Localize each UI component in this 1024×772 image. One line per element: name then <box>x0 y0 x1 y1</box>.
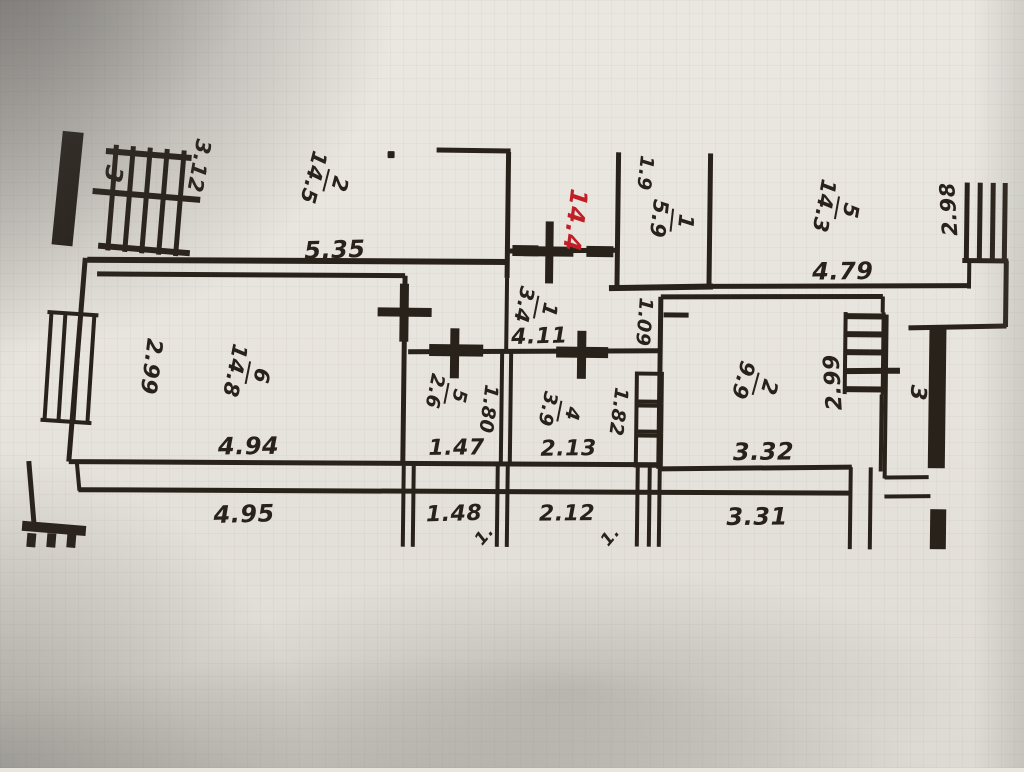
wall-block <box>586 246 613 257</box>
wall-divider <box>501 352 502 464</box>
wall-bottom-2 <box>78 484 851 499</box>
wall-room1-left <box>617 152 619 288</box>
room-area: 3.9 <box>534 390 562 429</box>
ink-dot <box>388 151 395 158</box>
dim-4-95: 4.95 <box>213 501 275 527</box>
dim-3-31: 3.31 <box>726 504 787 529</box>
room-number: 1 <box>533 296 562 323</box>
wall-room99-right <box>881 395 882 472</box>
wall-divider <box>510 352 511 464</box>
dim-1-48: 1.48 <box>426 503 483 527</box>
wall-room99-top <box>661 294 883 300</box>
wall-bottom-3 <box>884 496 930 498</box>
wall-corridor-left <box>506 278 507 352</box>
room-number: 5 <box>834 197 863 224</box>
dim-1-47: 1.47 <box>428 437 485 460</box>
solid-wall-balcony-right <box>928 326 947 468</box>
floor-plan: 3 3.12 2 14.5 5.35 14.4 1.9 1 5.9 5 14.3… <box>0 0 1024 772</box>
wall-room1-right <box>709 153 711 286</box>
dim-4-79: 4.79 <box>812 259 873 284</box>
room-area: 2.6 <box>421 372 449 411</box>
wall-balcony-right-bottom <box>885 477 929 479</box>
dim-2-12: 2.12 <box>539 503 596 526</box>
dim-4-94: 4.94 <box>218 434 279 459</box>
wall-tick-left <box>76 462 79 491</box>
centerline-cross <box>377 283 432 342</box>
room-label-5-14-3: 5 14.3 <box>808 177 866 239</box>
wall-room2-bottom <box>87 257 509 265</box>
wall-balcony-right-left <box>885 315 887 479</box>
wall-step-right <box>908 325 1006 329</box>
room-number: 4 <box>557 400 584 426</box>
balcony-right-number: 3 <box>905 384 928 401</box>
dim-1-82: 1.82 <box>605 386 630 437</box>
wall-balcony-outer-right <box>1006 261 1007 327</box>
dim-2-98: 2.98 <box>937 182 961 237</box>
dim-5-35: 5.35 <box>304 237 366 263</box>
dim-2-13: 2.13 <box>540 438 597 461</box>
photographed-floor-plan: 3 3.12 2 14.5 5.35 14.4 1.9 1 5.9 5 14.3… <box>0 0 1024 768</box>
wall-room2-top <box>437 150 511 151</box>
dim-2-99-right: 2.99 <box>821 353 846 411</box>
window-hatch-room99 <box>845 312 901 395</box>
window-hatch-top-right <box>962 182 1009 261</box>
dim-1-80: 1.80 <box>475 383 500 434</box>
window-hatch-left <box>40 311 98 424</box>
room-number: 5 <box>444 383 471 409</box>
wall-room1-bottom <box>609 285 713 289</box>
room-number: 6 <box>245 362 275 390</box>
room-label-6-14-8: 6 14.8 <box>219 342 278 405</box>
room-label-1-5-9: 1 5.9 <box>645 198 698 242</box>
room-area: 5.9 <box>645 198 673 239</box>
dim-1-09: 1.09 <box>632 297 655 347</box>
solid-wall-top-left <box>52 131 84 247</box>
solid-wall-bottom-right <box>930 509 946 549</box>
dim-4-11: 4.11 <box>511 325 568 349</box>
room-number: 1 <box>670 209 698 235</box>
dim-1-9: 1.9 <box>633 154 656 191</box>
dim-3-32: 3.32 <box>733 439 794 464</box>
dim-2-99-left: 2.99 <box>136 337 165 396</box>
wall-room6-top <box>97 272 405 278</box>
centerline-cross <box>429 328 484 379</box>
